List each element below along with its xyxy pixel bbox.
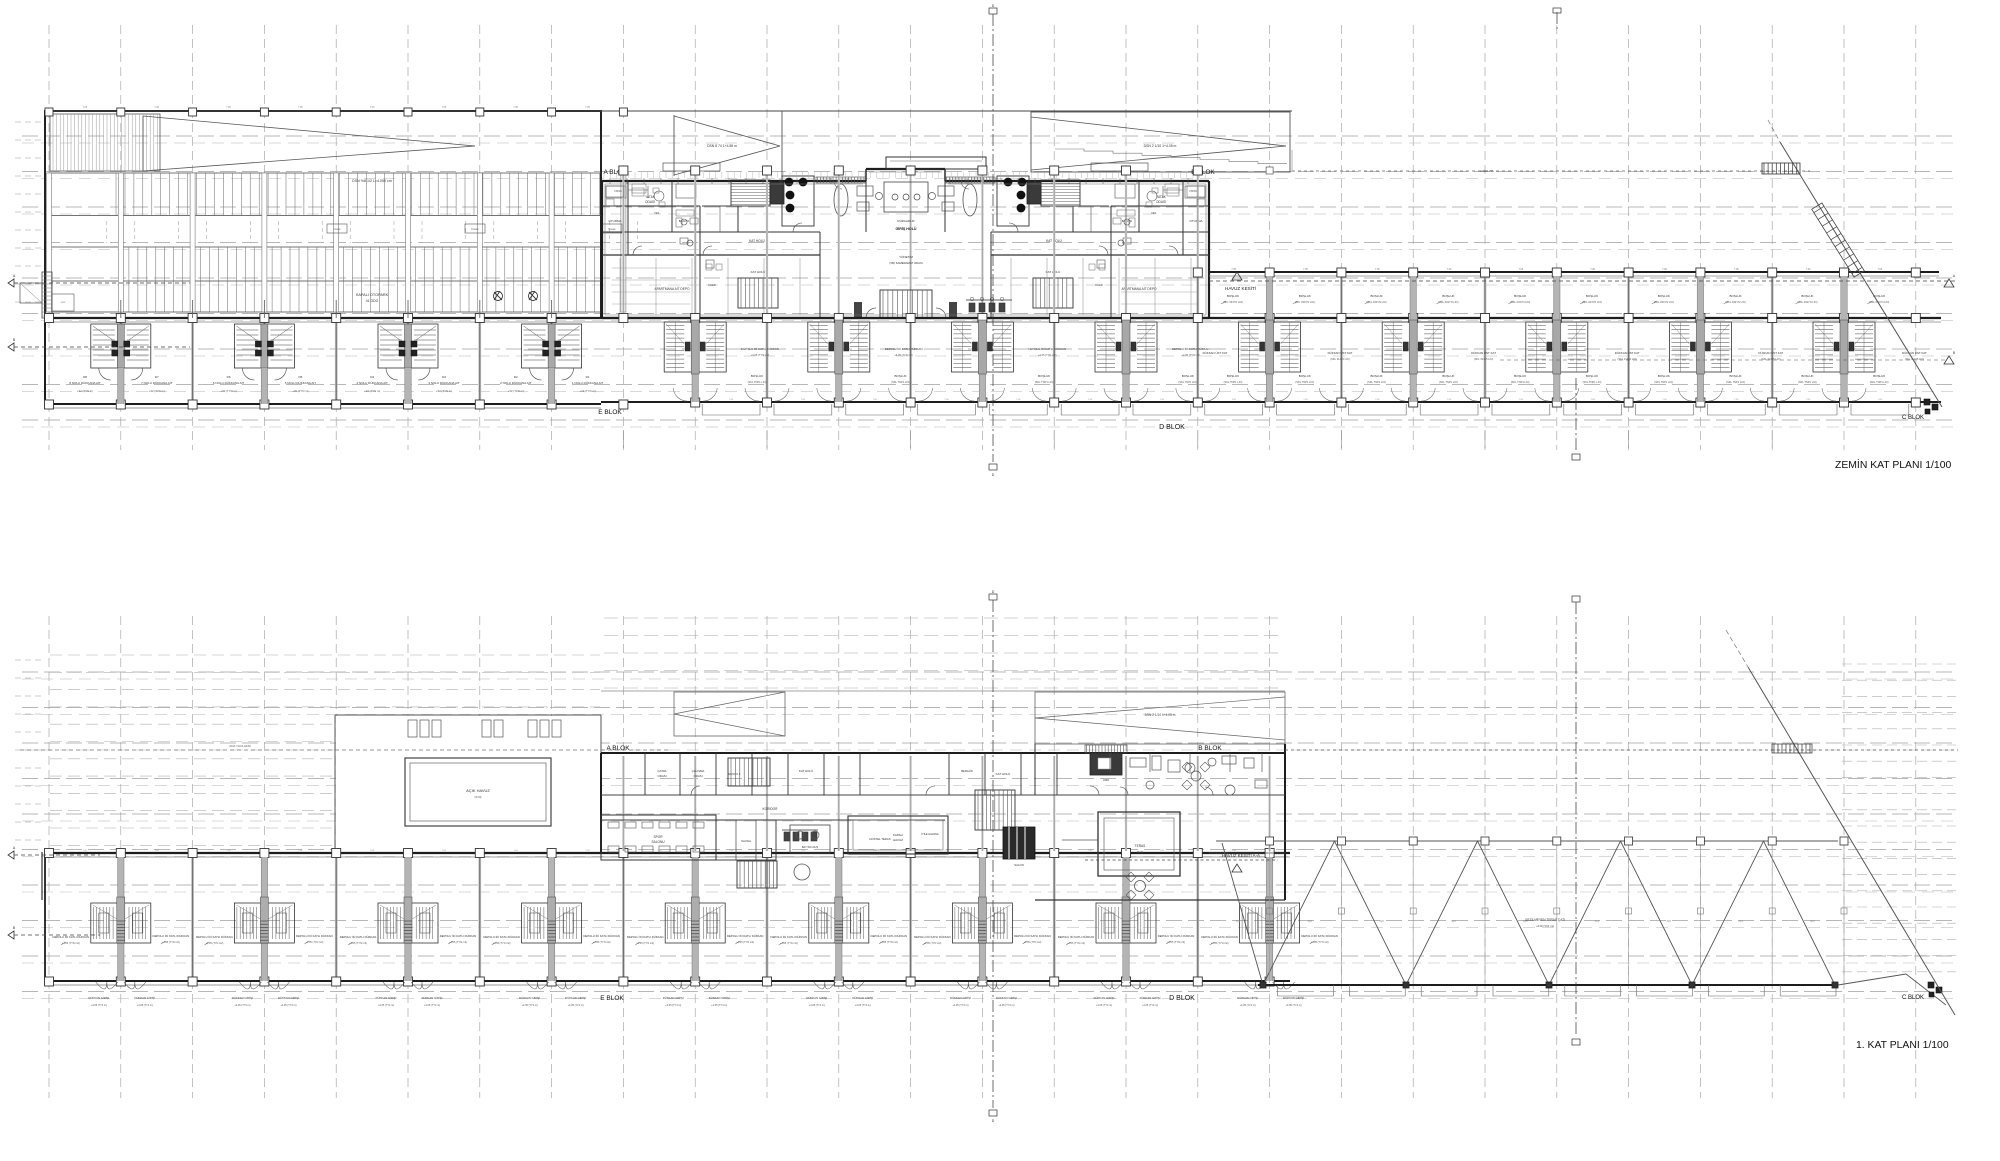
svg-text:BOŞLUK: BOŞLUK bbox=[1371, 294, 1383, 298]
svg-text:7.05: 7.05 bbox=[1878, 268, 1883, 271]
svg-text:+32 (TYN m): +32 (TYN m) bbox=[436, 389, 452, 393]
svg-text:7 NOLU DÜKKANA AİT: 7 NOLU DÜKKANA AİT bbox=[141, 380, 173, 385]
svg-text:KAPALI: KAPALI bbox=[893, 833, 903, 837]
svg-text:E BLOK: E BLOK bbox=[598, 409, 622, 416]
svg-text:DÜKKAN ÜST KAT: DÜKKAN ÜST KAT bbox=[1328, 351, 1353, 355]
svg-text:VES.: VES. bbox=[1151, 211, 1157, 215]
svg-text:BAY WC-DUŞ: BAY WC-DUŞ bbox=[802, 845, 819, 849]
svg-text:ANA YAYA AKSI: ANA YAYA AKSI bbox=[229, 744, 251, 748]
svg-text:(S=9): (S=9) bbox=[475, 795, 482, 799]
svg-text:+32 (TYN m): +32 (TYN m) bbox=[292, 389, 308, 393]
svg-text:BOŞLUK: BOŞLUK bbox=[1227, 294, 1239, 298]
svg-text:SALONU: SALONU bbox=[651, 840, 665, 844]
svg-text:GİRİŞ HOLÜ: GİRİŞ HOLÜ bbox=[896, 226, 917, 231]
svg-text:BOŞLUK: BOŞLUK bbox=[1586, 374, 1598, 378]
svg-text:DÜKKAN ÜST KAT: DÜKKAN ÜST KAT bbox=[1902, 351, 1927, 355]
svg-text:DÜKKAN GİRİŞİ: DÜKKAN GİRİŞİ bbox=[996, 995, 1017, 1000]
svg-text:BOŞLUK: BOŞLUK bbox=[1299, 374, 1311, 378]
svg-text:OTURMA: OTURMA bbox=[1190, 219, 1203, 223]
svg-text:DÜKKAN ÜST KAT: DÜKKAN ÜST KAT bbox=[1471, 351, 1496, 355]
svg-text:SALON: SALON bbox=[1014, 863, 1023, 867]
svg-text:BOŞLUK: BOŞLUK bbox=[1658, 374, 1670, 378]
svg-text:A BLOK: A BLOK bbox=[606, 745, 630, 752]
svg-text:+4.05 (TY4 m): +4.05 (TY4 m) bbox=[234, 1004, 250, 1007]
svg-text:DÜKKAN GİRİŞİ: DÜKKAN GİRİŞİ bbox=[88, 995, 109, 1000]
svg-text:DEPOLU İKİ KATLI DÜKKAN: DEPOLU İKİ KATLI DÜKKAN bbox=[483, 934, 519, 939]
svg-text:BOŞLUK: BOŞLUK bbox=[1038, 374, 1050, 378]
svg-text:Fosse: Fosse bbox=[333, 227, 341, 231]
svg-text:DEPOLU İKİ KATLI DÜKKAN: DEPOLU İKİ KATLI DÜKKAN bbox=[1158, 933, 1194, 938]
svg-text:SPOR: SPOR bbox=[653, 835, 663, 839]
svg-text:(SKL TNP1 LIO): (SKL TNP1 LIO) bbox=[1654, 380, 1673, 384]
svg-text:+4.05 (TY4 m): +4.05 (TY4 m) bbox=[855, 1004, 871, 1007]
svg-text:(SKL 034YN LIO): (SKL 034YN LIO) bbox=[1438, 300, 1458, 304]
svg-text:+4.05 (TYN m2): +4.05 (TYN m2) bbox=[1182, 353, 1201, 357]
svg-text:4 NOLU DÜKKANA AİT: 4 NOLU DÜKKANA AİT bbox=[357, 380, 389, 385]
svg-text:(SKL 034YN LIO): (SKL 034YN LIO) bbox=[1797, 300, 1817, 304]
svg-text:BOŞLUK: BOŞLUK bbox=[1514, 374, 1526, 378]
svg-text:DEPOLU İKİ KATLI DÜKKAN: DEPOLU İKİ KATLI DÜKKAN bbox=[727, 933, 763, 938]
svg-text:TERAS: TERAS bbox=[1135, 844, 1146, 848]
svg-text:(S=9): (S=9) bbox=[1137, 850, 1144, 854]
svg-text:BOŞLUK: BOŞLUK bbox=[1658, 294, 1670, 298]
svg-text:(SKL 034YN LIO): (SKL 034YN LIO) bbox=[1726, 300, 1746, 304]
svg-text:(SKL TNP1 LIO): (SKL TNP1 LIO) bbox=[1295, 380, 1314, 384]
svg-text:DEPOLU İKİ KATLI DÜKKAN: DEPOLU İKİ KATLI DÜKKAN bbox=[627, 934, 663, 939]
svg-text:AÇIK HAVUZ: AÇIK HAVUZ bbox=[466, 788, 490, 793]
svg-text:(SKL 31415 LIO): (SKL 31415 LIO) bbox=[1474, 357, 1494, 361]
svg-text:YÖNETİM: YÖNETİM bbox=[899, 254, 913, 259]
svg-text:BOŞLUK: BOŞLUK bbox=[1442, 294, 1454, 298]
svg-text:+4.05 (TY4 m): +4.05 (TY4 m) bbox=[711, 1004, 727, 1007]
svg-text:D2: D2 bbox=[514, 375, 518, 379]
svg-text:Fosse: Fosse bbox=[608, 227, 616, 231]
svg-text:BERGÜN: BERGÜN bbox=[961, 769, 973, 773]
svg-text:7.05: 7.05 bbox=[370, 106, 375, 109]
svg-text:D6: D6 bbox=[227, 375, 231, 379]
svg-text:DEPOLU İKİ KATLI DÜKKAN: DEPOLU İKİ KATLI DÜKKAN bbox=[296, 933, 332, 938]
svg-text:+32 (TYN m): +32 (TYN m) bbox=[77, 389, 93, 393]
svg-text:(SKL 034YN LIO): (SKL 034YN LIO) bbox=[1295, 300, 1315, 304]
svg-text:ODASI: ODASI bbox=[1156, 200, 1166, 204]
svg-text:ODASI: ODASI bbox=[694, 774, 703, 778]
svg-text:(SKL 31415 LIO): (SKL 31415 LIO) bbox=[1330, 357, 1350, 361]
svg-text:7.05: 7.05 bbox=[154, 106, 159, 109]
svg-text:(SKL 034YN LIO): (SKL 034YN LIO) bbox=[1223, 300, 1243, 304]
svg-text:(SKL 034YN LIO): (SKL 034YN LIO) bbox=[1869, 300, 1889, 304]
svg-text:(SKL TNP1 LIO): (SKL TNP1 LIO) bbox=[748, 380, 767, 384]
svg-text:3Ç5: 3Ç5 bbox=[1810, 920, 1815, 923]
svg-text:KORİDOR: KORİDOR bbox=[763, 806, 779, 811]
svg-text:BOŞLUK: BOŞLUK bbox=[1442, 374, 1454, 378]
svg-text:(VB) KAMERAMAT ODASI: (VB) KAMERAMAT ODASI bbox=[889, 261, 923, 265]
svg-text:+4.05 (TY4 m): +4.05 (TY4 m) bbox=[1142, 1004, 1158, 1007]
svg-text:+4.05 (TY4 m): +4.05 (TY4 m) bbox=[378, 1004, 394, 1007]
svg-text:6 NOLU DÜKKANA AİT: 6 NOLU DÜKKANA AİT bbox=[213, 380, 245, 385]
svg-text:KAT HOLÜ: KAT HOLÜ bbox=[751, 270, 766, 274]
svg-text:C BLOK: C BLOK bbox=[1902, 995, 1924, 1001]
svg-text:+4.05 (TYN m2): +4.05 (TYN m2) bbox=[1038, 353, 1057, 357]
svg-text:+4.05 (TY4 m): +4.05 (TY4 m) bbox=[998, 1004, 1014, 1007]
svg-text:DEPOLU İKİ KATLI DÜKKAN: DEPOLU İKİ KATLI DÜKKAN bbox=[1058, 934, 1094, 939]
svg-text:+632/7164 m2: +632/7164 m2 bbox=[1536, 924, 1554, 928]
svg-text:(SKL TNP1 LIO): (SKL TNP1 LIO) bbox=[1439, 380, 1458, 384]
svg-text:D7: D7 bbox=[155, 375, 159, 379]
svg-text:DÜKKAN ÜST KAT: DÜKKAN ÜST KAT bbox=[1203, 351, 1228, 355]
svg-text:BOŞLUK: BOŞLUK bbox=[1801, 294, 1813, 298]
svg-text:BOŞLUK: BOŞLUK bbox=[1227, 374, 1239, 378]
svg-text:2 NOLU DÜKKANA AİT: 2 NOLU DÜKKANA AİT bbox=[500, 380, 532, 385]
svg-text:YATAK: YATAK bbox=[614, 189, 622, 193]
svg-text:7.05: 7.05 bbox=[1519, 268, 1524, 271]
svg-text:(SKL 31415 LIO): (SKL 31415 LIO) bbox=[1618, 357, 1638, 361]
svg-text:DEPOLU İKİ KATLI DÜKKAN: DEPOLU İKİ KATLI DÜKKAN bbox=[440, 933, 476, 938]
svg-text:B BLOK: B BLOK bbox=[1198, 745, 1222, 752]
svg-text:(SKL TNP1 LIO): (SKL TNP1 LIO) bbox=[1035, 380, 1054, 384]
svg-text:BOŞLUK: BOŞLUK bbox=[751, 374, 763, 378]
svg-text:BANYO: BANYO bbox=[1122, 219, 1133, 223]
svg-text:(SKL 31415 LIO): (SKL 31415 LIO) bbox=[1761, 357, 1781, 361]
svg-text:DEPOLU İKİ KATLI DÜKKAN: DEPOLU İKİ KATLI DÜKKAN bbox=[196, 934, 232, 939]
svg-text:+4.05 (TY4 m): +4.05 (TY4 m) bbox=[91, 1004, 107, 1007]
svg-text:7.05: 7.05 bbox=[585, 106, 590, 109]
svg-text:BOŞLUK: BOŞLUK bbox=[1586, 294, 1598, 298]
svg-text:SAUNA: SAUNA bbox=[741, 839, 751, 843]
svg-text:DÜKKAN GİRİŞİ: DÜKKAN GİRİŞİ bbox=[852, 995, 873, 1000]
svg-text:DÜKKAN GİRİŞİ: DÜKKAN GİRİŞİ bbox=[422, 995, 443, 1000]
svg-text:(SKL TNP1 LIO): (SKL TNP1 LIO) bbox=[1798, 380, 1817, 384]
svg-text:7.05: 7.05 bbox=[1734, 268, 1739, 271]
svg-text:(SKL TNP1 LIO): (SKL TNP1 LIO) bbox=[1726, 380, 1745, 384]
svg-text:DÜKKAN GİRİŞİ: DÜKKAN GİRİŞİ bbox=[1094, 995, 1115, 1000]
svg-text:KAT HOLÜ: KAT HOLÜ bbox=[799, 769, 813, 773]
svg-text:YATAK: YATAK bbox=[1156, 195, 1167, 199]
svg-text:3Ç5: 3Ç5 bbox=[1379, 920, 1384, 923]
svg-text:KAT HOLÜ: KAT HOLÜ bbox=[1046, 270, 1061, 274]
svg-text:+4.05 (TY4 m): +4.05 (TY4 m) bbox=[137, 1004, 153, 1007]
svg-text:3Ç5: 3Ç5 bbox=[1667, 920, 1672, 923]
svg-text:7.05: 7.05 bbox=[226, 106, 231, 109]
svg-text:ZEMİN KAT PLANI 1/100: ZEMİN KAT PLANI 1/100 bbox=[1835, 458, 1951, 471]
svg-text:+32 (TYN m): +32 (TYN m) bbox=[364, 389, 380, 393]
svg-text:DÜKKAN GİRİŞİ: DÜKKAN GİRİŞİ bbox=[709, 995, 730, 1000]
svg-text:+4.05 (TY4 m): +4.05 (TY4 m) bbox=[1286, 1004, 1302, 1007]
svg-text:7.05: 7.05 bbox=[1447, 268, 1452, 271]
svg-text:VES.: VES. bbox=[654, 211, 660, 215]
svg-text:HOSTEL TERAS: HOSTEL TERAS bbox=[869, 837, 890, 841]
svg-text:DÜKKAN GİRİŞİ: DÜKKAN GİRİŞİ bbox=[376, 995, 397, 1000]
svg-text:3Ç5: 3Ç5 bbox=[1738, 920, 1743, 923]
svg-text:D BLOK: D BLOK bbox=[1169, 995, 1195, 1002]
svg-text:DSN 2 1/10 1+4.05 m: DSN 2 1/10 1+4.05 m bbox=[1144, 144, 1177, 148]
svg-text:3 NOLU DÜKKANA AİT: 3 NOLU DÜKKANA AİT bbox=[428, 380, 460, 385]
svg-text:C BLOK: C BLOK bbox=[1902, 415, 1924, 421]
svg-text:(SKL 31415 LIO): (SKL 31415 LIO) bbox=[1905, 357, 1925, 361]
svg-text:DÜKKAN GİRİŞİ: DÜKKAN GİRİŞİ bbox=[232, 995, 253, 1000]
svg-text:DÜKKAN GİRİŞİ: DÜKKAN GİRİŞİ bbox=[806, 995, 827, 1000]
svg-text:BOŞLUK: BOŞLUK bbox=[1299, 294, 1311, 298]
svg-text:BOŞLUK: BOŞLUK bbox=[1182, 374, 1194, 378]
svg-text:APARTMANA AİT DEPO: APARTMANA AİT DEPO bbox=[655, 286, 690, 291]
svg-text:(SKL TNP1 LIO): (SKL TNP1 LIO) bbox=[1870, 380, 1889, 384]
svg-text:DEPOLU İKİ KATLI DÜKKAN: DEPOLU İKİ KATLI DÜKKAN bbox=[914, 934, 950, 939]
svg-text:7.05: 7.05 bbox=[1375, 268, 1380, 271]
svg-text:+4.05 (TY4 m): +4.05 (TY4 m) bbox=[424, 1004, 440, 1007]
svg-text:+4.05 (TY4 m): +4.05 (TY4 m) bbox=[809, 1004, 825, 1007]
svg-text:7.05: 7.05 bbox=[1231, 268, 1236, 271]
svg-text:DÜKKAN ÜST KAT: DÜKKAN ÜST KAT bbox=[1615, 351, 1640, 355]
svg-text:BOŞLUK: BOŞLUK bbox=[1730, 374, 1742, 378]
svg-text:DÜKKAN GİRİŞİ: DÜKKAN GİRİŞİ bbox=[663, 995, 684, 1000]
svg-text:BOŞLUK: BOŞLUK bbox=[1873, 374, 1885, 378]
svg-text:+4.05 (TY4 m): +4.05 (TY4 m) bbox=[522, 1004, 538, 1007]
svg-text:(SKL TNP1 LIO): (SKL TNP1 LIO) bbox=[1367, 380, 1386, 384]
svg-text:BOŞLUK: BOŞLUK bbox=[895, 374, 907, 378]
svg-text:+4.05 (TY4 m): +4.05 (TY4 m) bbox=[280, 1004, 296, 1007]
svg-text:+32 (TYN m): +32 (TYN m) bbox=[580, 389, 596, 393]
svg-text:ÇATAK: ÇATAK bbox=[657, 769, 666, 773]
svg-text:(SKL TNP1 LIO): (SKL TNP1 LIO) bbox=[1511, 380, 1530, 384]
svg-text:DEPOLU İKİ KATLI DÜKKAN: DEPOLU İKİ KATLI DÜKKAN bbox=[340, 934, 376, 939]
svg-text:D5: D5 bbox=[298, 375, 302, 379]
svg-text:BOŞLUK: BOŞLUK bbox=[1514, 294, 1526, 298]
svg-text:D4: D4 bbox=[370, 375, 374, 379]
svg-text:(SKL TNP1 LIO): (SKL TNP1 LIO) bbox=[1224, 380, 1243, 384]
svg-text:BOŞLUK: BOŞLUK bbox=[1371, 374, 1383, 378]
svg-text:+4.05 (TY4 m): +4.05 (TY4 m) bbox=[952, 1004, 968, 1007]
svg-text:HAVUZ KESİTİ A-A: HAVUZ KESİTİ A-A bbox=[1222, 853, 1260, 858]
svg-text:7.05: 7.05 bbox=[1806, 268, 1811, 271]
svg-text:+4.05 (TY4 m): +4.05 (TY4 m) bbox=[665, 1004, 681, 1007]
svg-text:DÜKKAN GİRİŞİ: DÜKKAN GİRİŞİ bbox=[950, 995, 971, 1000]
svg-text:DEPOLU İKİ KATLI DÜKKAN: DEPOLU İKİ KATLI DÜKKAN bbox=[153, 933, 189, 938]
svg-text:DEPOLU İKİ KATLI DÜKKAN: DEPOLU İKİ KATLI DÜKKAN bbox=[741, 346, 779, 351]
svg-text:3Ç5: 3Ç5 bbox=[1236, 920, 1241, 923]
svg-text:HAVUZ KESİTİ: HAVUZ KESİTİ bbox=[1225, 285, 1256, 291]
svg-text:DÜKKAN GİRİŞİ: DÜKKAN GİRİŞİ bbox=[565, 995, 586, 1000]
svg-text:D1: D1 bbox=[586, 375, 590, 379]
svg-text:DEPOLU İKİ KATLI DÜKKAN: DEPOLU İKİ KATLI DÜKKAN bbox=[771, 934, 807, 939]
svg-text:7.05: 7.05 bbox=[442, 106, 447, 109]
svg-text:DÜKKAN GİRİŞİ: DÜKKAN GİRİŞİ bbox=[519, 995, 540, 1000]
svg-text:BOŞLUK: BOŞLUK bbox=[1730, 294, 1742, 298]
svg-text:+32 (TYN m): +32 (TYN m) bbox=[221, 389, 237, 393]
svg-text:BOŞLUK: BOŞLUK bbox=[1801, 374, 1813, 378]
svg-text:GÖZ: GÖZ bbox=[61, 301, 66, 304]
svg-text:1 NOLU DÜKKANA AİT: 1 NOLU DÜKKANA AİT bbox=[572, 380, 604, 385]
svg-text:7.05: 7.05 bbox=[1590, 268, 1595, 271]
svg-text:RÜZGARLIK: RÜZGARLIK bbox=[897, 219, 914, 223]
svg-text:+4.05 (TY4 m): +4.05 (TY4 m) bbox=[1096, 1004, 1112, 1007]
svg-text:3Ç5: 3Ç5 bbox=[1308, 920, 1313, 923]
svg-text:YATAK: YATAK bbox=[1189, 189, 1197, 193]
svg-text:5 NOLU DÜKKANA AİT: 5 NOLU DÜKKANA AİT bbox=[285, 380, 317, 385]
svg-text:+4.05 (TYN m2): +4.05 (TYN m2) bbox=[894, 353, 913, 357]
svg-text:B: B bbox=[1953, 351, 1955, 355]
svg-text:7.05: 7.05 bbox=[1303, 268, 1308, 271]
svg-text:KAT HOLÜ: KAT HOLÜ bbox=[749, 239, 765, 243]
svg-text:DEPOLU İKİ KATLI DÜKKAN: DEPOLU İKİ KATLI DÜKKAN bbox=[1301, 933, 1337, 938]
svg-text:DSN 2 1/10 1+4.05 m: DSN 2 1/10 1+4.05 m bbox=[1145, 713, 1176, 717]
svg-text:HAVUZ: HAVUZ bbox=[893, 838, 903, 842]
svg-text:+4.05 (TY4 m): +4.05 (TY4 m) bbox=[1240, 1004, 1256, 1007]
svg-text:ODASI: ODASI bbox=[658, 774, 667, 778]
svg-text:BANYO 1: BANYO 1 bbox=[728, 772, 741, 776]
svg-text:Fosse: Fosse bbox=[471, 227, 479, 231]
svg-text:(SKL 034YN LIO): (SKL 034YN LIO) bbox=[1582, 300, 1602, 304]
svg-text:8 NOLU DÜKKANA AİT: 8 NOLU DÜKKANA AİT bbox=[69, 380, 101, 385]
svg-text:DSN %8 1/2 L=4.050 cm: DSN %8 1/2 L=4.050 cm bbox=[352, 179, 392, 183]
svg-text:(SKL TNP1 LIO): (SKL TNP1 LIO) bbox=[1583, 380, 1602, 384]
svg-text:3Ç5: 3Ç5 bbox=[1595, 920, 1600, 923]
svg-text:+4.05 (TY4 m): +4.05 (TY4 m) bbox=[568, 1004, 584, 1007]
svg-text:DÜKKAN GİRİŞİ: DÜKKAN GİRİŞİ bbox=[134, 995, 155, 1000]
svg-text:7.05: 7.05 bbox=[1662, 268, 1667, 271]
svg-text:DEPOLU İKİ KATLI DÜKKAN: DEPOLU İKİ KATLI DÜKKAN bbox=[1014, 933, 1050, 938]
svg-text:DEPOLU İKİ KATLI DÜKKAN: DEPOLU İKİ KATLI DÜKKAN bbox=[871, 933, 907, 938]
svg-text:DEPOLU İKİ KATLI DÜKKAN: DEPOLU İKİ KATLI DÜKKAN bbox=[583, 933, 619, 938]
svg-text:+4.05 (TYN m2): +4.05 (TYN m2) bbox=[751, 353, 770, 357]
svg-text:KAPALI OTOPARK: KAPALI OTOPARK bbox=[356, 293, 389, 297]
svg-text:DSN 8 74 1+4.58 m: DSN 8 74 1+4.58 m bbox=[707, 144, 737, 148]
svg-text:7.05: 7.05 bbox=[83, 106, 88, 109]
svg-text:DEPOLU İKİ KATLI DÜKKAN: DEPOLU İKİ KATLI DÜKKAN bbox=[885, 346, 923, 351]
svg-text:(SKL TNP1 LIO): (SKL TNP1 LIO) bbox=[891, 380, 910, 384]
svg-text:D3: D3 bbox=[442, 375, 446, 379]
svg-text:41 ODO: 41 ODO bbox=[366, 299, 379, 303]
svg-text:DÜKKAN GİRİŞİ: DÜKKAN GİRİŞİ bbox=[1140, 995, 1161, 1000]
svg-text:BANYO: BANYO bbox=[679, 219, 690, 223]
svg-text:DÜKKAN GİRİŞİ: DÜKKAN GİRİŞİ bbox=[278, 995, 299, 1000]
svg-text:DÜKKAN GİRİŞİ: DÜKKAN GİRİŞİ bbox=[1237, 995, 1258, 1000]
svg-text:+632 S YOL: +632 S YOL bbox=[1480, 169, 1495, 173]
svg-text:7.05: 7.05 bbox=[513, 106, 518, 109]
svg-text:DEPOLU İKİ KATLI DÜKKAN: DEPOLU İKİ KATLI DÜKKAN bbox=[1201, 934, 1237, 939]
svg-text:KAT HOLÜ: KAT HOLÜ bbox=[996, 772, 1011, 776]
svg-text:ODASI: ODASI bbox=[645, 200, 655, 204]
svg-text:7.05: 7.05 bbox=[298, 106, 303, 109]
svg-text:D8: D8 bbox=[83, 375, 87, 379]
svg-text:(SKL 034YN LIO): (SKL 034YN LIO) bbox=[1654, 300, 1674, 304]
svg-text:ÇALIŞMA: ÇALIŞMA bbox=[692, 769, 705, 773]
svg-text:+32 (TYN m): +32 (TYN m) bbox=[508, 389, 524, 393]
svg-text:D BLOK: D BLOK bbox=[1159, 424, 1185, 431]
svg-text:DÜKKAN ÜST KAT: DÜKKAN ÜST KAT bbox=[1758, 351, 1783, 355]
svg-text:DEPOLU İKİ KATLI DÜKKAN: DEPOLU İKİ KATLI DÜKKAN bbox=[1028, 346, 1066, 351]
svg-text:(SKL 034YN LIO): (SKL 034YN LIO) bbox=[1510, 300, 1530, 304]
svg-text:3Ç5: 3Ç5 bbox=[1451, 920, 1456, 923]
svg-text:(SKL 034YN LIO): (SKL 034YN LIO) bbox=[1367, 300, 1387, 304]
svg-text:E BLOK: E BLOK bbox=[600, 995, 624, 1002]
svg-text:(SKL TNP1 LIO): (SKL TNP1 LIO) bbox=[1178, 380, 1197, 384]
svg-text:+32 (TYN m): +32 (TYN m) bbox=[149, 389, 165, 393]
svg-text:1. KAT PLANI 1/100: 1. KAT PLANI 1/100 bbox=[1856, 1040, 1949, 1051]
svg-text:GEZİLMEYEN TERAS ÇATI: GEZİLMEYEN TERAS ÇATI bbox=[1525, 917, 1565, 922]
svg-text:OTURMA: OTURMA bbox=[609, 219, 622, 223]
